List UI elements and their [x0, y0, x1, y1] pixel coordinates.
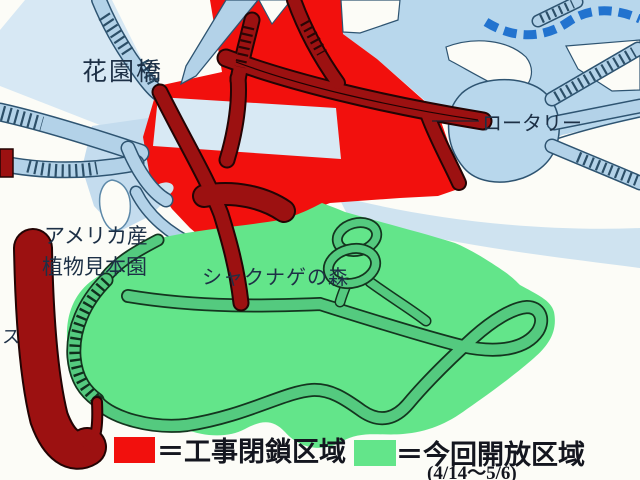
left-edge-partial-label: ス: [2, 327, 20, 347]
legend-open-dates: (4/14～5/6): [427, 463, 517, 480]
forest-label: シャクナゲの森: [202, 266, 349, 289]
park-map-canvas: 花園橋 ロータリー アメリカ産 植物見本園 シャクナゲの森 ス ＝工事閉鎖区域 …: [0, 0, 640, 480]
rotary-label: ロータリー: [482, 112, 582, 135]
legend-swatch-closed: [114, 437, 155, 463]
road-west-lower: [0, 163, 136, 170]
garden-label-line2: 植物見本園: [42, 255, 147, 279]
bridge-label: 花園橋: [82, 58, 163, 86]
legend-swatch-open: [354, 440, 396, 466]
park-map: 花園橋 ロータリー アメリカ産 植物見本園 シャクナゲの森 ス ＝工事閉鎖区域 …: [0, 0, 640, 480]
garden-label-line1: アメリカ産: [44, 224, 148, 248]
closed-road-left-edge-stub: [0, 149, 13, 177]
legend-closed-label: ＝工事閉鎖区域: [157, 436, 346, 467]
